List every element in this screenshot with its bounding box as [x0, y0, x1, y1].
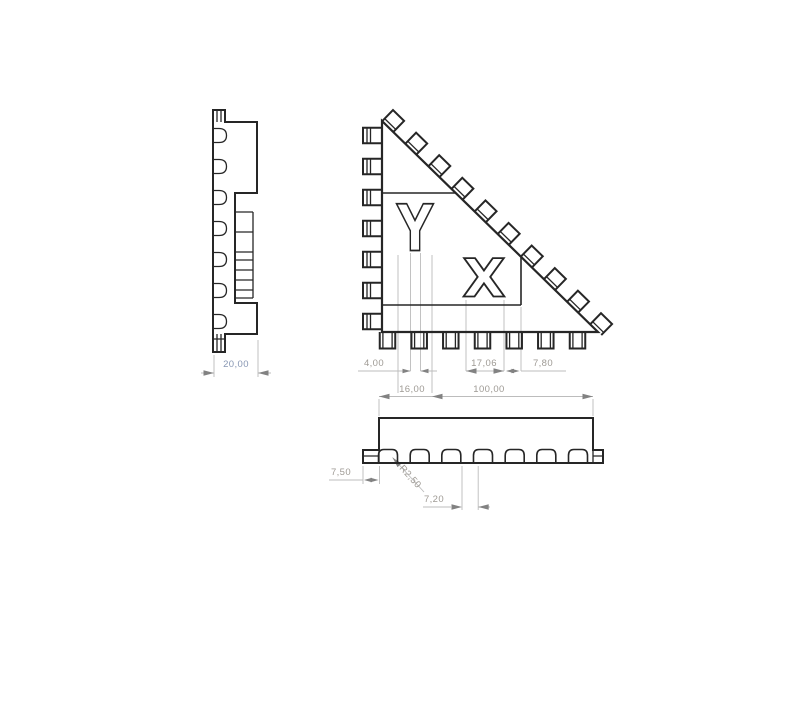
- dim-overall-width: 100,00: [473, 384, 504, 395]
- dim-edge-offset: 7,50: [331, 467, 351, 478]
- dim-x-width: 17,06: [471, 358, 497, 369]
- dim-y-stem-width: 4,00: [364, 358, 384, 369]
- cutout-letter-y: Y: [396, 193, 433, 267]
- cutout-letter-x: X: [463, 249, 506, 310]
- cad-drawing-canvas: 20,00 4,00 17,06 7,80 16,00 100,00: [0, 0, 800, 706]
- dim-tooth-radius: R2,50: [397, 463, 424, 491]
- side-view-dimensions: 20,00: [201, 340, 271, 377]
- bottom-view: [363, 418, 603, 463]
- dim-side-thickness: 20,00: [223, 359, 249, 370]
- dim-tooth-gap: 7,20: [424, 494, 444, 505]
- dim-x-to-pocket: 7,80: [533, 358, 553, 369]
- cad-drawing: 20,00 4,00 17,06 7,80 16,00 100,00: [0, 0, 800, 706]
- side-view: [213, 110, 257, 352]
- dim-y-width: 16,00: [399, 384, 425, 395]
- front-view: Y X: [363, 110, 612, 348]
